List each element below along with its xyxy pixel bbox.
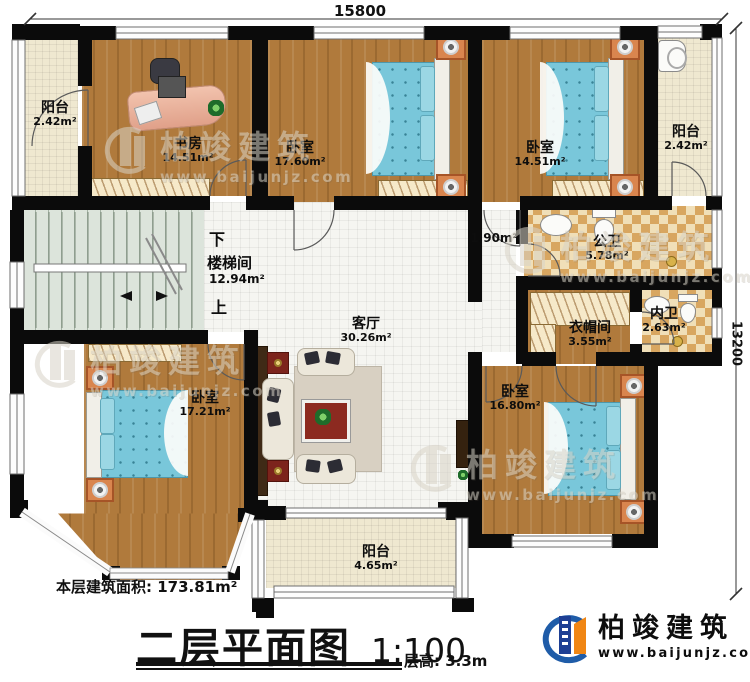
lamp-icon: [92, 370, 108, 386]
brand-url: www.baijunjz.com: [598, 646, 750, 661]
plant-icon: [208, 100, 224, 116]
room-area: 3.55m²: [550, 336, 630, 349]
pillow-icon: [606, 450, 621, 490]
washer-icon: [658, 40, 686, 72]
dimension-top: 15800: [330, 2, 390, 20]
bed-headboard: [608, 58, 624, 180]
stairwell-floor: [22, 210, 204, 330]
floor-drain-icon: [672, 336, 683, 347]
bed-headboard: [620, 398, 636, 500]
room-area: 17.60m²: [260, 156, 340, 169]
room-name: 卧室: [260, 140, 340, 156]
sink-icon: [540, 214, 572, 236]
nightstand: [86, 366, 114, 390]
bedroom-bottom-left-wardrobe: [88, 344, 182, 362]
pillow-icon: [100, 434, 115, 470]
pillow-icon: [606, 406, 621, 446]
room-label-balcony-bottom: 阳台 4.65m²: [336, 544, 416, 573]
room-area: 17.21m²: [165, 406, 245, 419]
room-area: 2.42m²: [646, 140, 726, 153]
stairwell-area: 12.94m²: [209, 272, 265, 286]
room-name: 阳台: [15, 100, 95, 116]
floor-height-text: 层高: 3.3m: [404, 650, 487, 671]
room-name: 阳台: [336, 544, 416, 560]
stairs-down-label: 下: [209, 226, 225, 250]
sofa-pillow: [305, 459, 321, 473]
title-underline: [136, 668, 402, 670]
dimension-right: 13200: [729, 314, 744, 374]
room-name: 衣帽间: [550, 320, 630, 336]
pillow-icon: [100, 398, 115, 434]
sofa-pillow: [267, 411, 281, 427]
watermark-logo-icon: [30, 336, 82, 390]
room-area: 4.65m²: [336, 560, 416, 573]
lamp-icon: [626, 504, 642, 520]
pillow-icon: [594, 66, 609, 112]
nightstand: [620, 500, 648, 524]
room-name: 内卫: [624, 306, 704, 322]
pillow-icon: [420, 115, 435, 161]
pillow-icon: [594, 115, 609, 161]
room-area: 1.90m²: [454, 232, 534, 246]
room-name: 卧室: [500, 140, 580, 156]
lamp-icon: [617, 179, 633, 195]
room-label-study: 书房 14.51m²: [148, 136, 228, 165]
floorplan-canvas: 15800 13200 阳台 2.42m² 书房 14.51m² 卧室 17.6…: [0, 0, 750, 682]
floor-area-text: 本层建筑面积: 173.81m²: [56, 576, 237, 597]
room-name: 书房: [148, 136, 228, 152]
pillow-icon: [420, 66, 435, 112]
title-underline: [136, 662, 402, 666]
study-wardrobe: [90, 178, 210, 200]
room-label-inner-bath: 内卫 2.63m²: [624, 306, 704, 335]
room-label-balcony-top-left: 阳台 2.42m²: [15, 100, 95, 129]
room-name: 客厅: [326, 316, 406, 332]
room-label-bedroom-bottom-left: 卧室 17.21m²: [165, 390, 245, 419]
bed-headboard: [434, 58, 450, 180]
floor-drain-icon: [666, 256, 677, 267]
nightstand: [620, 374, 648, 398]
lamp-icon: [626, 378, 642, 394]
lamp-icon: [617, 39, 633, 55]
room-label-corridor: 1.90m²: [454, 232, 534, 246]
room-area: 14.51m²: [148, 152, 228, 165]
lamp-icon: [92, 482, 108, 498]
room-label-balcony-top-right: 阳台 2.42m²: [646, 124, 726, 153]
tv-console: [456, 420, 472, 468]
stairwell-name: 楼梯间: [207, 252, 252, 273]
decor-icon: [274, 467, 282, 475]
room-area: 2.63m²: [624, 322, 704, 335]
nightstand: [436, 174, 466, 200]
bedroom-bottom-left-bay-floor: [58, 510, 256, 580]
stairs-up-label: 上: [211, 294, 227, 318]
side-table: [267, 352, 289, 374]
room-label-bedroom-top-right: 卧室 14.51m²: [500, 140, 580, 169]
lamp-icon: [443, 39, 459, 55]
toilet-tank-icon: [678, 294, 698, 302]
brand-logo-icon: [538, 608, 592, 666]
room-area: 14.51m²: [500, 156, 580, 169]
nightstand: [610, 174, 640, 200]
monitor-icon: [158, 76, 186, 98]
room-area: 5.78m²: [567, 250, 647, 263]
room-label-cloakroom: 衣帽间 3.55m²: [550, 320, 630, 349]
plant-icon: [458, 470, 468, 480]
room-area: 30.26m²: [326, 332, 406, 345]
room-label-living: 客厅 30.26m²: [326, 316, 406, 345]
room-name: 卧室: [165, 390, 245, 406]
room-label-bedroom-top-mid: 卧室 17.60m²: [260, 140, 340, 169]
nightstand: [610, 34, 640, 60]
plant-icon: [315, 409, 331, 425]
decor-icon: [274, 359, 282, 367]
room-area: 2.42m²: [15, 116, 95, 129]
toilet-tank-icon: [592, 208, 616, 218]
nightstand: [436, 34, 466, 60]
lamp-icon: [443, 179, 459, 195]
sofa-pillow: [325, 351, 341, 365]
room-label-bedroom-bottom-right: 卧室 16.80m²: [475, 384, 555, 413]
room-area: 16.80m²: [475, 400, 555, 413]
room-label-public-bath: 公卫 5.78m²: [567, 234, 647, 263]
brand-logo: 柏竣建筑 www.baijunjz.com: [538, 608, 750, 666]
room-name: 卧室: [475, 384, 555, 400]
side-table: [267, 460, 289, 482]
nightstand: [86, 478, 114, 502]
brand-name: 柏竣建筑: [598, 614, 750, 644]
washer-door-icon: [667, 47, 687, 69]
room-name: 阳台: [646, 124, 726, 140]
room-name: 公卫: [567, 234, 647, 250]
